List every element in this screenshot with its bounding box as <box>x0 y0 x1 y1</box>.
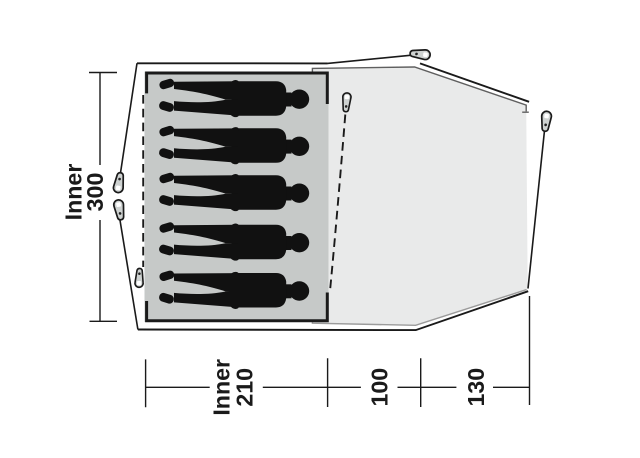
svg-text:300: 300 <box>82 173 108 212</box>
svg-text:210: 210 <box>232 368 258 407</box>
svg-text:130: 130 <box>463 368 489 407</box>
svg-text:100: 100 <box>367 368 393 407</box>
